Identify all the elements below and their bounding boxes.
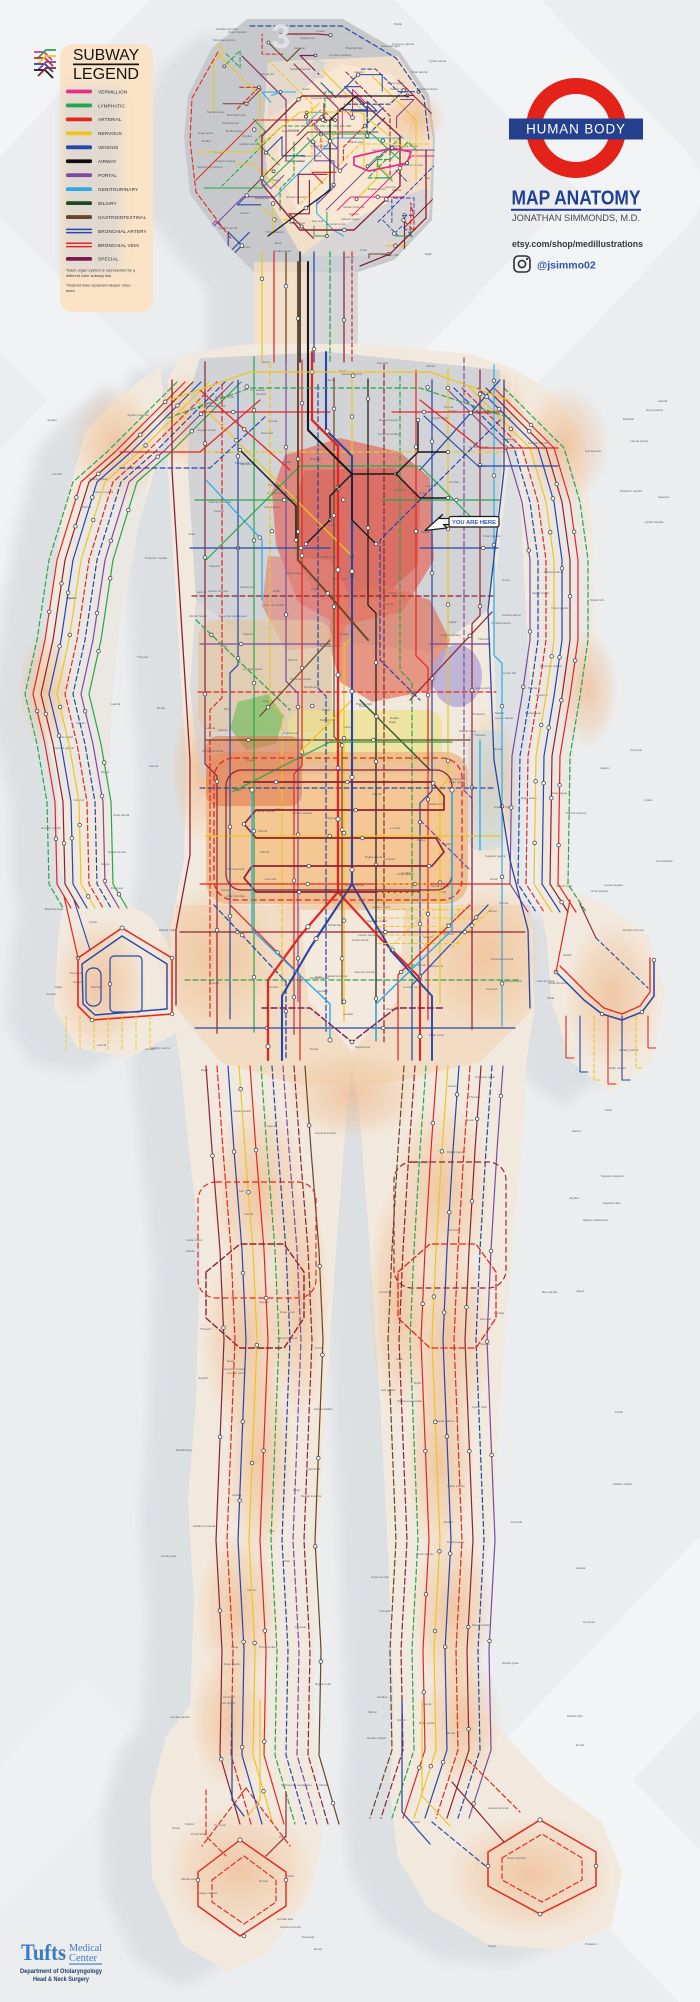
- svg-text:Lumbar portal: Lumbar portal: [227, 1371, 246, 1375]
- svg-text:Brachial deep: Brachial deep: [45, 907, 64, 911]
- svg-text:Deep: Deep: [275, 241, 283, 245]
- svg-text:Thoracic: Thoracic: [200, 1327, 212, 1331]
- svg-text:Ulnar: Ulnar: [287, 1874, 294, 1878]
- svg-text:Deep: Deep: [263, 699, 271, 703]
- svg-text:Axillary peroneal: Axillary peroneal: [193, 1524, 216, 1528]
- svg-text:Sciatic left: Sciatic left: [590, 598, 604, 602]
- svg-text:Lateral: Lateral: [576, 1566, 586, 1570]
- svg-text:Sciatic great: Sciatic great: [502, 1661, 519, 1665]
- svg-text:Cystic right: Cystic right: [472, 1405, 487, 1409]
- svg-text:Right: Right: [389, 720, 396, 724]
- svg-text:Cystic jugular: Cystic jugular: [447, 1484, 465, 1488]
- svg-text:Portal: Portal: [221, 888, 229, 892]
- svg-text:Thoracic: Thoracic: [137, 655, 149, 659]
- svg-text:Saphenous hepatic: Saphenous hepatic: [393, 144, 419, 148]
- svg-text:GASTROINTESTINAL: GASTROINTESTINAL: [98, 215, 147, 220]
- svg-text:@jsimmo02: @jsimmo02: [537, 260, 596, 272]
- svg-text:Ulnar lateral: Ulnar lateral: [411, 70, 428, 74]
- svg-text:Medial right: Medial right: [567, 1714, 583, 1718]
- svg-text:Lesser lateral: Lesser lateral: [495, 716, 513, 720]
- svg-text:Lumbar: Lumbar: [390, 826, 400, 830]
- svg-text:Cardiac cervical: Cardiac cervical: [216, 27, 238, 31]
- svg-text:Jugular: Jugular: [569, 1196, 579, 1200]
- svg-text:Portal lumbar: Portal lumbar: [259, 1645, 277, 1649]
- svg-text:Gastric: Gastric: [600, 766, 610, 770]
- svg-text:Lumbar medial: Lumbar medial: [264, 603, 284, 607]
- svg-text:Splenic saphenous: Splenic saphenous: [583, 1218, 609, 1222]
- svg-text:Palmar: Palmar: [260, 850, 270, 854]
- svg-text:Femoral: Femoral: [265, 877, 276, 881]
- svg-text:Right lesser: Right lesser: [333, 577, 349, 581]
- svg-text:Radial: Radial: [444, 1520, 453, 1524]
- svg-text:Saphenous: Saphenous: [355, 1045, 371, 1049]
- svg-text:Common: Common: [214, 1823, 227, 1827]
- svg-text:Left superior: Left superior: [264, 505, 281, 509]
- svg-text:Posterior medial: Posterior medial: [145, 556, 167, 560]
- svg-text:Lesser: Lesser: [448, 1084, 457, 1088]
- svg-text:Superior gastric: Superior gastric: [485, 854, 507, 858]
- svg-text:ARTERIAL: ARTERIAL: [98, 117, 122, 122]
- svg-text:Sacral: Sacral: [572, 1129, 581, 1133]
- svg-text:Portal: Portal: [412, 1820, 420, 1824]
- svg-text:Common: Common: [223, 1695, 236, 1699]
- svg-text:Portal dorsal: Portal dorsal: [222, 121, 239, 125]
- svg-text:Lateral cervical: Lateral cervical: [488, 1806, 509, 1810]
- svg-text:NERVOUS: NERVOUS: [98, 131, 122, 136]
- svg-text:Jugular: Jugular: [259, 1300, 269, 1304]
- svg-text:Lumbar: Lumbar: [449, 480, 459, 484]
- svg-text:Inferior: Inferior: [185, 1822, 194, 1826]
- svg-text:Hepatic: Hepatic: [318, 989, 329, 993]
- svg-text:Vagus vagus: Vagus vagus: [286, 571, 304, 575]
- svg-text:HUMAN BODY: HUMAN BODY: [526, 122, 626, 137]
- svg-text:tures: tures: [66, 288, 75, 293]
- svg-text:Digital jugular: Digital jugular: [447, 1150, 465, 1154]
- svg-text:Portal iliac: Portal iliac: [328, 923, 342, 927]
- svg-text:Lateral portal: Lateral portal: [630, 439, 648, 443]
- svg-text:Iliac plantar: Iliac plantar: [542, 1290, 557, 1294]
- svg-text:Palmar: Palmar: [499, 901, 509, 905]
- svg-text:Lateral: Lateral: [658, 399, 668, 403]
- svg-text:Cystic lumbar: Cystic lumbar: [371, 1575, 389, 1579]
- svg-text:Jugular dorsal: Jugular dorsal: [197, 428, 216, 432]
- svg-text:Right carotid: Right carotid: [609, 1066, 626, 1070]
- svg-text:Cystic hepatic: Cystic hepatic: [645, 520, 664, 524]
- svg-text:Ulnar brachial: Ulnar brachial: [226, 894, 245, 898]
- svg-text:different color subway line.: different color subway line.: [66, 273, 112, 278]
- svg-text:Cervical iliac: Cervical iliac: [656, 859, 673, 863]
- svg-text:Cervical: Cervical: [384, 857, 395, 861]
- svg-text:BRONCHIAL VEIN: BRONCHIAL VEIN: [98, 243, 139, 248]
- svg-text:Tufts: Tufts: [21, 1940, 66, 1965]
- svg-text:Saphenous jugular: Saphenous jugular: [397, 1399, 422, 1403]
- svg-text:Carotid: Carotid: [256, 392, 266, 396]
- svg-text:Right: Right: [55, 985, 62, 989]
- svg-text:*Dashed lines represent deeper: *Dashed lines represent deeper struc-: [66, 283, 132, 288]
- svg-text:Carotid inferior: Carotid inferior: [418, 87, 438, 91]
- svg-text:Lumbar iliac: Lumbar iliac: [277, 1917, 294, 1921]
- svg-text:Tibial: Tibial: [231, 1645, 238, 1649]
- svg-text:PORTAL: PORTAL: [98, 173, 117, 178]
- svg-text:Lateral left: Lateral left: [260, 72, 274, 76]
- svg-text:Lesser: Lesser: [316, 29, 325, 33]
- svg-text:BILIARY: BILIARY: [98, 201, 117, 206]
- svg-text:Cardiac: Cardiac: [377, 1695, 388, 1699]
- svg-text:Lateral: Lateral: [244, 1212, 254, 1216]
- svg-text:Inferior thoracic: Inferior thoracic: [208, 589, 229, 593]
- svg-text:Ulnar: Ulnar: [605, 1108, 612, 1112]
- svg-text:Cardiac renal: Cardiac renal: [273, 249, 291, 253]
- svg-text:Center: Center: [69, 1953, 97, 1964]
- svg-text:Carotid sacral: Carotid sacral: [502, 613, 521, 617]
- svg-text:MAP ANATOMY: MAP ANATOMY: [512, 187, 641, 210]
- svg-text:Axillary: Axillary: [232, 1493, 242, 1497]
- svg-text:Saphenous saphenous: Saphenous saphenous: [281, 1783, 312, 1787]
- svg-text:Lateral: Lateral: [422, 1702, 432, 1706]
- svg-text:Thoracic: Thoracic: [474, 733, 486, 737]
- svg-text:Thoracic: Thoracic: [379, 1609, 391, 1613]
- svg-text:Superior gastric: Superior gastric: [53, 746, 75, 750]
- svg-text:Digital lumbar: Digital lumbar: [108, 850, 126, 854]
- svg-text:Hepatic inferior: Hepatic inferior: [41, 826, 61, 830]
- svg-text:Medial lesser: Medial lesser: [207, 110, 225, 114]
- svg-text:GENITOURINARY: GENITOURINARY: [98, 187, 139, 192]
- svg-text:Great: Great: [490, 877, 498, 881]
- svg-text:Lateral cystic: Lateral cystic: [537, 979, 555, 983]
- svg-text:Ulnar jugular: Ulnar jugular: [591, 889, 608, 893]
- svg-text:Vagus: Vagus: [101, 862, 110, 866]
- svg-text:Ulnar: Ulnar: [283, 1559, 290, 1563]
- svg-text:Lesser sacral: Lesser sacral: [372, 905, 390, 909]
- svg-text:Jugular left: Jugular left: [300, 36, 315, 40]
- svg-text:Ulnar: Ulnar: [360, 248, 367, 252]
- svg-text:Axillary sciatic: Axillary sciatic: [613, 1482, 632, 1486]
- svg-text:Digital renal: Digital renal: [283, 731, 299, 735]
- svg-text:Radial lesser: Radial lesser: [226, 129, 243, 133]
- svg-text:LEGEND: LEGEND: [73, 66, 139, 83]
- svg-text:Right: Right: [414, 1381, 421, 1385]
- svg-text:Splenic vagus: Splenic vagus: [341, 217, 360, 221]
- svg-text:Jugular: Jugular: [242, 134, 252, 138]
- svg-text:Brachial cystic: Brachial cystic: [227, 113, 247, 117]
- svg-text:Radial: Radial: [202, 139, 211, 143]
- svg-text:Lateral: Lateral: [111, 702, 121, 706]
- svg-text:Common: Common: [630, 748, 643, 752]
- svg-text:Digital: Digital: [340, 632, 349, 636]
- svg-text:Tibial: Tibial: [547, 996, 554, 1000]
- svg-text:Great: Great: [302, 87, 310, 91]
- svg-text:Vagus: Vagus: [576, 1289, 585, 1293]
- svg-text:Left left: Left left: [52, 472, 62, 476]
- svg-text:Ulnar: Ulnar: [188, 532, 195, 536]
- svg-text:*Each organ system is represen: *Each organ system is represented by a: [66, 268, 136, 273]
- svg-text:Medial: Medial: [495, 711, 504, 715]
- svg-text:Lesser splenic: Lesser splenic: [293, 811, 313, 815]
- svg-text:Posterior: Posterior: [70, 971, 82, 975]
- svg-text:Peroneal: Peroneal: [302, 1935, 314, 1939]
- svg-text:Ulnar hepatic: Ulnar hepatic: [483, 534, 501, 538]
- svg-text:Vagus carotid: Vagus carotid: [199, 1891, 217, 1895]
- svg-text:Thoracic: Thoracic: [478, 637, 490, 641]
- svg-text:Digital: Digital: [448, 620, 457, 624]
- svg-text:Femoral: Femoral: [377, 361, 388, 365]
- svg-text:Portal tibial: Portal tibial: [191, 1832, 206, 1836]
- svg-text:Carotid: Carotid: [268, 985, 278, 989]
- svg-text:Superior superior: Superior superior: [601, 1174, 624, 1178]
- svg-text:Radial hepatic: Radial hepatic: [379, 418, 399, 422]
- svg-text:Plantar: Plantar: [91, 985, 101, 989]
- svg-text:Right: Right: [273, 589, 280, 593]
- svg-text:Lateral: Lateral: [206, 726, 216, 730]
- svg-text:Renal: Renal: [576, 1743, 584, 1747]
- svg-text:Superior iliac: Superior iliac: [603, 1201, 621, 1205]
- svg-text:Peroneal: Peroneal: [261, 431, 273, 435]
- svg-text:Medial axillary: Medial axillary: [472, 1623, 492, 1627]
- svg-text:Sciatic: Sciatic: [563, 953, 572, 957]
- svg-text:Superior dorsal: Superior dorsal: [354, 970, 375, 974]
- svg-text:Carotid: Carotid: [46, 992, 56, 996]
- svg-text:Brachial: Brachial: [623, 417, 634, 421]
- svg-text:Gastric lumbar: Gastric lumbar: [216, 159, 236, 163]
- svg-text:Dorsal: Dorsal: [259, 1879, 268, 1883]
- svg-text:Posterior: Posterior: [585, 1942, 597, 1946]
- svg-text:3: 3: [272, 18, 291, 56]
- svg-text:Digital renal: Digital renal: [315, 1682, 331, 1686]
- svg-text:Sciatic: Sciatic: [385, 602, 394, 606]
- svg-text:Tibial cardiac: Tibial cardiac: [321, 555, 339, 559]
- svg-text:Plantar inferior: Plantar inferior: [435, 1419, 455, 1423]
- svg-text:Right lesser: Right lesser: [521, 796, 537, 800]
- svg-text:Hepatic digital: Hepatic digital: [367, 1736, 386, 1740]
- svg-text:Palmar femoral: Palmar femoral: [277, 1336, 298, 1340]
- svg-text:Deep great: Deep great: [198, 131, 213, 135]
- svg-text:Vagus sciatic: Vagus sciatic: [532, 591, 550, 595]
- svg-text:Renal: Renal: [447, 1731, 455, 1735]
- svg-text:Axillary left: Axillary left: [240, 585, 255, 589]
- svg-text:Cystic cystic: Cystic cystic: [186, 1238, 203, 1242]
- svg-text:JONATHAN SIMMONDS, M.D.: JONATHAN SIMMONDS, M.D.: [512, 213, 640, 224]
- svg-text:BRONCHIAL ARTERY: BRONCHIAL ARTERY: [98, 229, 147, 234]
- svg-text:Great gastric: Great gastric: [646, 408, 664, 412]
- svg-text:Posterior carotid: Posterior carotid: [620, 489, 642, 493]
- svg-text:Hepatic: Hepatic: [343, 1012, 354, 1016]
- svg-text:Dorsal common: Dorsal common: [623, 928, 644, 932]
- svg-text:Lumbar gastric: Lumbar gastric: [170, 1715, 190, 1719]
- svg-text:Cardiac: Cardiac: [401, 871, 412, 875]
- svg-text:Femoral: Femoral: [480, 1317, 491, 1321]
- svg-text:Great great: Great great: [161, 1554, 176, 1558]
- svg-text:Posterior: Posterior: [473, 712, 485, 716]
- svg-text:Cervical: Cervical: [295, 1625, 306, 1629]
- svg-text:Palmar radial: Palmar radial: [159, 928, 177, 932]
- svg-text:Great: Great: [502, 578, 510, 582]
- svg-text:Left gastric: Left gastric: [381, 1388, 396, 1392]
- svg-text:Deep: Deep: [227, 1359, 235, 1363]
- svg-text:Jugular: Jugular: [198, 1376, 208, 1380]
- svg-text:Radial: Radial: [390, 716, 399, 720]
- svg-text:VERMILLION: VERMILLION: [98, 89, 127, 94]
- svg-text:Portal deep: Portal deep: [304, 685, 320, 689]
- svg-text:VENOUS: VENOUS: [98, 145, 118, 150]
- svg-text:Vagus portal: Vagus portal: [475, 686, 492, 690]
- svg-text:Axillary sacral: Axillary sacral: [239, 142, 258, 146]
- svg-text:Sacral: Sacral: [368, 1710, 377, 1714]
- svg-text:Lesser jugular: Lesser jugular: [604, 883, 623, 887]
- svg-text:SPECIAL: SPECIAL: [98, 257, 119, 262]
- svg-text:Common: Common: [583, 1620, 596, 1624]
- svg-text:Great sacral: Great sacral: [352, 938, 369, 942]
- svg-text:Deep brachial: Deep brachial: [507, 1856, 526, 1860]
- svg-text:Splenic: Splenic: [218, 728, 228, 732]
- svg-text:Plantar: Plantar: [528, 686, 538, 690]
- svg-text:Peroneal splenic: Peroneal splenic: [213, 38, 236, 42]
- svg-text:Common saphenous: Common saphenous: [219, 614, 247, 618]
- svg-text:Superior: Superior: [658, 495, 669, 499]
- svg-text:Posterior: Posterior: [486, 987, 498, 991]
- svg-text:Carotid cervical: Carotid cervical: [280, 1925, 301, 1929]
- svg-text:Right: Right: [201, 1068, 208, 1072]
- svg-text:etsy.com/shop/medillustrations: etsy.com/shop/medillustrations: [512, 239, 643, 249]
- svg-text:Portal: Portal: [315, 1346, 323, 1350]
- svg-text:Femoral lumbar: Femoral lumbar: [315, 1131, 336, 1135]
- svg-text:Great splenic: Great splenic: [416, 1552, 434, 1556]
- svg-text:Medial superior: Medial superior: [301, 1494, 322, 1498]
- svg-text:YOU ARE HERE: YOU ARE HERE: [452, 520, 496, 526]
- svg-text:Brachial iliac: Brachial iliac: [346, 46, 363, 50]
- svg-text:Digital sacral: Digital sacral: [365, 855, 383, 859]
- svg-text:Ulnar lateral: Ulnar lateral: [113, 813, 130, 817]
- svg-text:Deep ulnar: Deep ulnar: [280, 1310, 295, 1314]
- svg-text:Peroneal: Peroneal: [111, 886, 123, 890]
- svg-text:Deep: Deep: [293, 1488, 301, 1492]
- svg-text:Plantar left: Plantar left: [235, 461, 250, 465]
- svg-text:Renal: Renal: [157, 706, 165, 710]
- svg-text:Left digital: Left digital: [221, 1701, 235, 1705]
- svg-text:Common palmar: Common palmar: [392, 42, 414, 46]
- svg-text:Renal: Renal: [494, 747, 502, 751]
- svg-text:Renal: Renal: [314, 1947, 322, 1951]
- svg-text:Gastric axillary: Gastric axillary: [441, 633, 461, 637]
- svg-text:Right portal: Right portal: [419, 1721, 435, 1725]
- svg-text:Portal: Portal: [394, 22, 402, 26]
- svg-text:Brachial: Brachial: [310, 457, 321, 461]
- svg-text:Left: Left: [239, 1189, 244, 1193]
- svg-text:Dorsal superior: Dorsal superior: [286, 195, 306, 199]
- svg-text:Dorsal lesser: Dorsal lesser: [282, 129, 300, 133]
- svg-text:LYMPHATIC: LYMPHATIC: [98, 103, 126, 108]
- svg-text:Sacral: Sacral: [488, 909, 497, 913]
- svg-text:Cystic sacral: Cystic sacral: [429, 59, 446, 63]
- svg-text:Cervical cardiac: Cervical cardiac: [378, 432, 400, 436]
- svg-text:2: 2: [311, 54, 325, 84]
- svg-text:Plantar: Plantar: [258, 829, 268, 833]
- svg-text:Medial deep: Medial deep: [176, 1448, 193, 1452]
- svg-text:Inferior: Inferior: [240, 211, 249, 215]
- svg-text:AIRWAY: AIRWAY: [98, 159, 117, 164]
- svg-text:Iliac: Iliac: [224, 707, 230, 711]
- svg-text:Portal: Portal: [310, 1047, 318, 1051]
- svg-text:Vagus: Vagus: [488, 1944, 497, 1948]
- svg-text:Head & Neck Surgery: Head & Neck Surgery: [33, 1977, 90, 1983]
- svg-text:Lateral: Lateral: [97, 1043, 107, 1047]
- svg-text:Vagus: Vagus: [388, 591, 397, 595]
- svg-text:Sciatic: Sciatic: [186, 1249, 195, 1253]
- svg-text:Radial iliac: Radial iliac: [429, 802, 444, 806]
- svg-text:Department of Otolaryngology: Department of Otolaryngology: [20, 1969, 103, 1975]
- svg-text:Cystic: Cystic: [644, 798, 653, 802]
- svg-text:Common renal: Common renal: [475, 1075, 495, 1079]
- svg-text:Great: Great: [172, 1826, 180, 1830]
- svg-text:Femoral: Femoral: [312, 219, 323, 223]
- svg-text:Peroneal splenic: Peroneal splenic: [540, 664, 563, 668]
- svg-text:Great: Great: [466, 1118, 474, 1122]
- svg-text:Palmar: Palmar: [288, 658, 298, 662]
- svg-text:Sacral axillary: Sacral axillary: [314, 1407, 333, 1411]
- svg-text:Right: Right: [425, 252, 432, 256]
- svg-text:Cystic: Cystic: [89, 920, 98, 924]
- svg-text:Superior: Superior: [243, 632, 254, 636]
- svg-text:Superior: Superior: [209, 564, 220, 568]
- svg-text:Lateral: Lateral: [372, 792, 382, 796]
- svg-text:Jugular: Jugular: [47, 418, 57, 422]
- svg-text:Lumbar posterior: Lumbar posterior: [329, 53, 352, 57]
- svg-text:Lateral: Lateral: [149, 764, 159, 768]
- svg-text:Portal: Portal: [615, 1410, 623, 1414]
- svg-text:Inferior: Inferior: [426, 364, 435, 368]
- svg-text:Cystic left: Cystic left: [503, 671, 516, 675]
- svg-text:Left femoral: Left femoral: [585, 449, 601, 453]
- svg-text:Femoral: Femoral: [511, 1520, 522, 1524]
- svg-text:SUBWAY: SUBWAY: [73, 47, 139, 64]
- svg-text:Lateral: Lateral: [345, 255, 355, 259]
